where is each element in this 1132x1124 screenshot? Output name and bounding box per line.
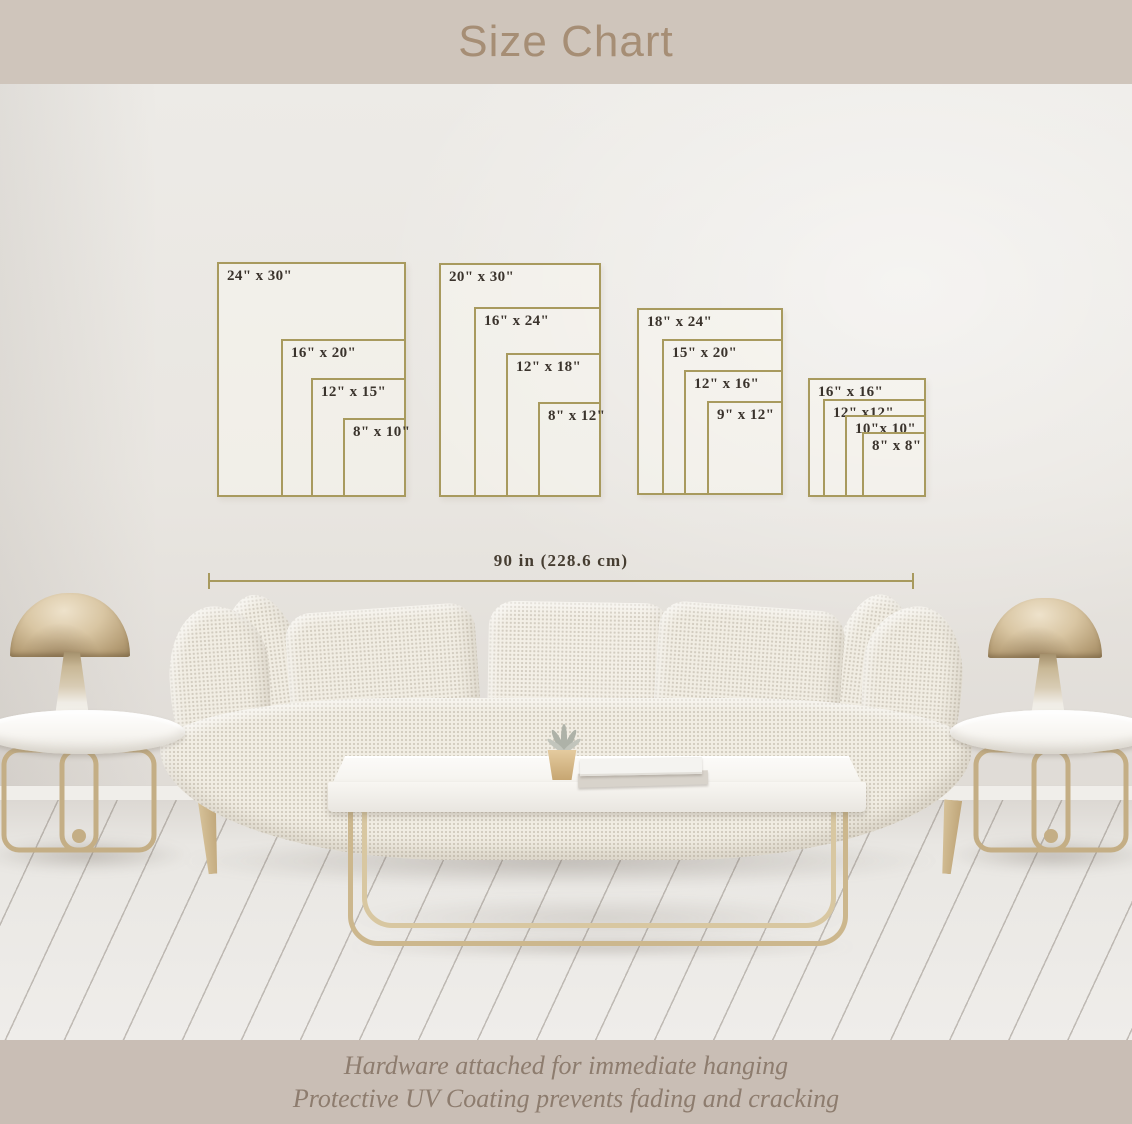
size-frame-label: 8" x 8" — [872, 438, 921, 455]
ruler-tick-right — [912, 573, 914, 589]
mushroom-lamp-dome — [988, 598, 1102, 658]
table-legs — [962, 748, 1132, 860]
size-frame-label: 16" x 24" — [484, 313, 549, 330]
size-frame-label: 8" x 12" — [548, 408, 605, 425]
size-frame-label: 16" x 20" — [291, 345, 356, 362]
size-frame-portrait-3x4-9x12: 9" x 12" — [707, 401, 783, 495]
left-side-table — [0, 588, 185, 878]
size-frame-label: 18" x 24" — [647, 314, 712, 331]
ruler-line — [208, 580, 914, 582]
book — [580, 757, 702, 776]
size-frame-label: 20" x 30" — [449, 269, 514, 286]
size-frame-label: 15" x 20" — [672, 345, 737, 362]
size-frame-label: 9" x 12" — [717, 407, 774, 424]
size-frame-portrait-4x5-8x10: 8" x 10" — [343, 418, 406, 497]
ruler-label: 90 in (228.6 cm) — [208, 551, 914, 571]
footer-line-1: Hardware attached for immediate hanging — [0, 1049, 1132, 1082]
width-ruler: 90 in (228.6 cm) — [208, 551, 914, 589]
size-frame-portrait-2x3-8x12: 8" x 12" — [538, 402, 601, 497]
size-frame-label: 12" x 18" — [516, 359, 581, 376]
footer-line-2: Protective UV Coating prevents fading an… — [0, 1082, 1132, 1115]
coffee-table-leg-front — [348, 804, 848, 946]
right-side-table — [950, 588, 1132, 878]
size-frame-label: 8" x 10" — [353, 424, 410, 441]
page-title: Size Chart — [458, 17, 673, 67]
size-chart-infographic: 24" x 30"16" x 20"12" x 15"8" x 10"20" x… — [0, 0, 1132, 1124]
size-frame-label: 12" x 16" — [694, 376, 759, 393]
size-frame-square-8x8: 8" x 8" — [862, 432, 926, 497]
mushroom-lamp-dome — [10, 593, 130, 657]
bottom-banner: Hardware attached for immediate hanging … — [0, 1040, 1132, 1124]
size-frame-label: 12" x 15" — [321, 384, 386, 401]
size-frame-label: 24" x 30" — [227, 268, 292, 285]
ruler-tick-left — [208, 573, 210, 589]
coffee-table — [328, 700, 866, 960]
table-legs — [0, 748, 170, 860]
top-banner: Size Chart — [0, 0, 1132, 84]
